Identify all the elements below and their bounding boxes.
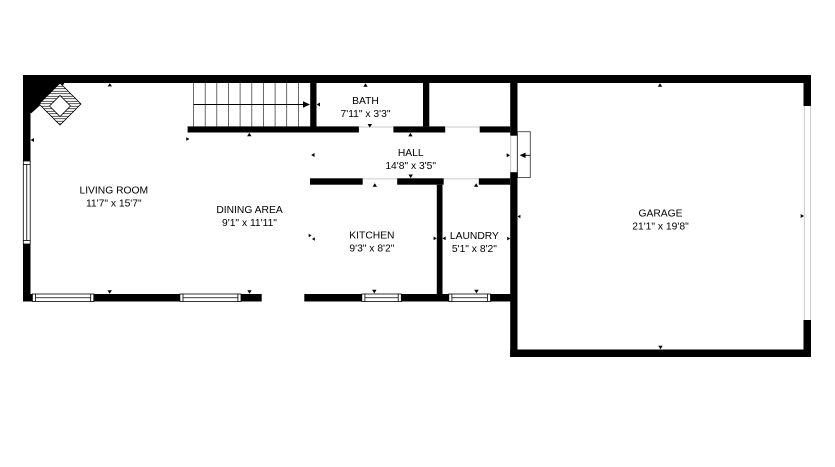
svg-text:DINING AREA: DINING AREA: [216, 205, 283, 216]
svg-text:21'1" x 19'8": 21'1" x 19'8": [632, 222, 689, 233]
svg-text:9'3" x 8'2": 9'3" x 8'2": [349, 243, 394, 254]
svg-text:11'7" x 15'7": 11'7" x 15'7": [86, 199, 142, 210]
svg-text:LIVING ROOM: LIVING ROOM: [79, 186, 148, 197]
svg-text:LAUNDRY: LAUNDRY: [450, 231, 499, 242]
svg-text:9'1" x 11'11": 9'1" x 11'11": [222, 218, 277, 229]
svg-text:GARAGE: GARAGE: [638, 209, 682, 220]
svg-text:KITCHEN: KITCHEN: [349, 230, 394, 241]
svg-text:BATH: BATH: [352, 96, 379, 107]
svg-text:5'1" x 8'2": 5'1" x 8'2": [452, 244, 497, 255]
svg-text:14'8" x 3'5": 14'8" x 3'5": [385, 161, 436, 172]
svg-text:HALL: HALL: [398, 148, 424, 159]
svg-text:7'11" x 3'3": 7'11" x 3'3": [341, 109, 391, 120]
